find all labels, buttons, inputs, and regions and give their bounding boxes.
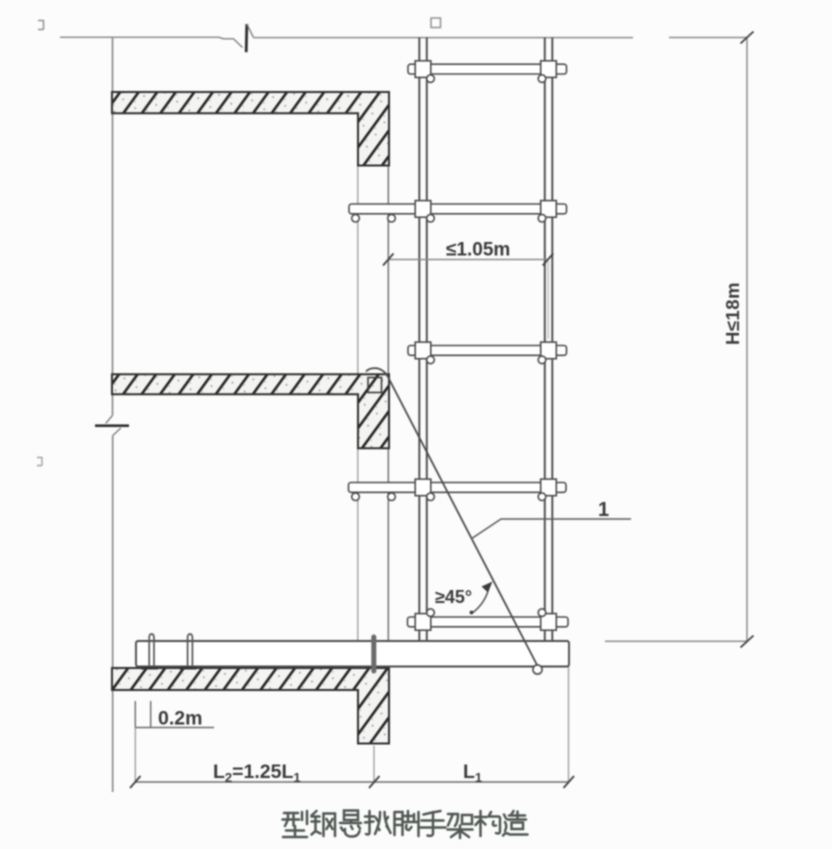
svg-text:L2=1.25L1: L2=1.25L1	[213, 761, 301, 785]
svg-text:≤1.05m: ≤1.05m	[446, 240, 510, 261]
svg-text:L1: L1	[463, 761, 482, 785]
svg-text:1: 1	[598, 499, 609, 521]
svg-text:≥45°: ≥45°	[435, 587, 472, 607]
svg-text:0.2m: 0.2m	[158, 708, 202, 730]
svg-text:H≤18m: H≤18m	[722, 282, 743, 345]
